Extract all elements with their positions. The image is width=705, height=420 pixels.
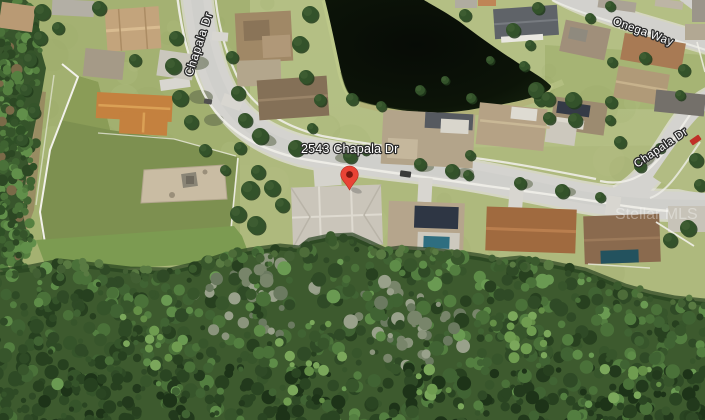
svg-text:2543 Chapala Dr: 2543 Chapala Dr (301, 142, 399, 156)
svg-text:Stellar MLS: Stellar MLS (615, 206, 698, 223)
